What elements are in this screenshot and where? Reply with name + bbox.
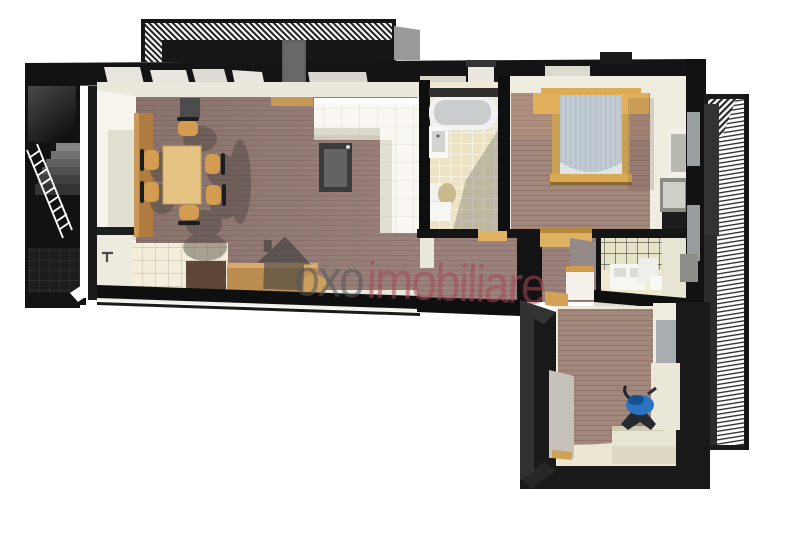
svg-text:oxo: oxo [294,249,365,309]
svg-text:imobiliare: imobiliare [366,252,547,316]
